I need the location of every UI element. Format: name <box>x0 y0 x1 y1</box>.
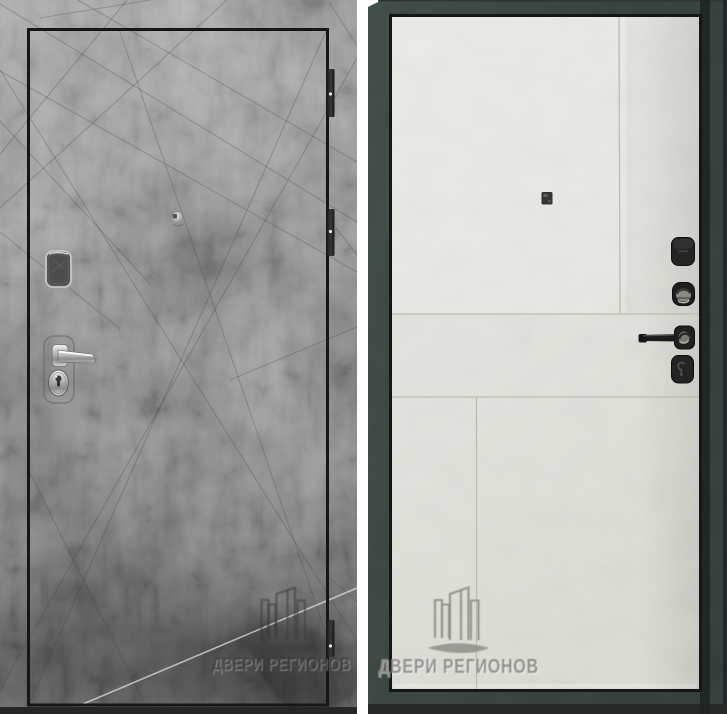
svg-text:ДВЕРИ РЕГИОНОВ: ДВЕРИ РЕГИОНОВ <box>378 654 539 677</box>
svg-text:ДВЕРИ РЕГИОНОВ: ДВЕРИ РЕГИОНОВ <box>212 655 351 674</box>
